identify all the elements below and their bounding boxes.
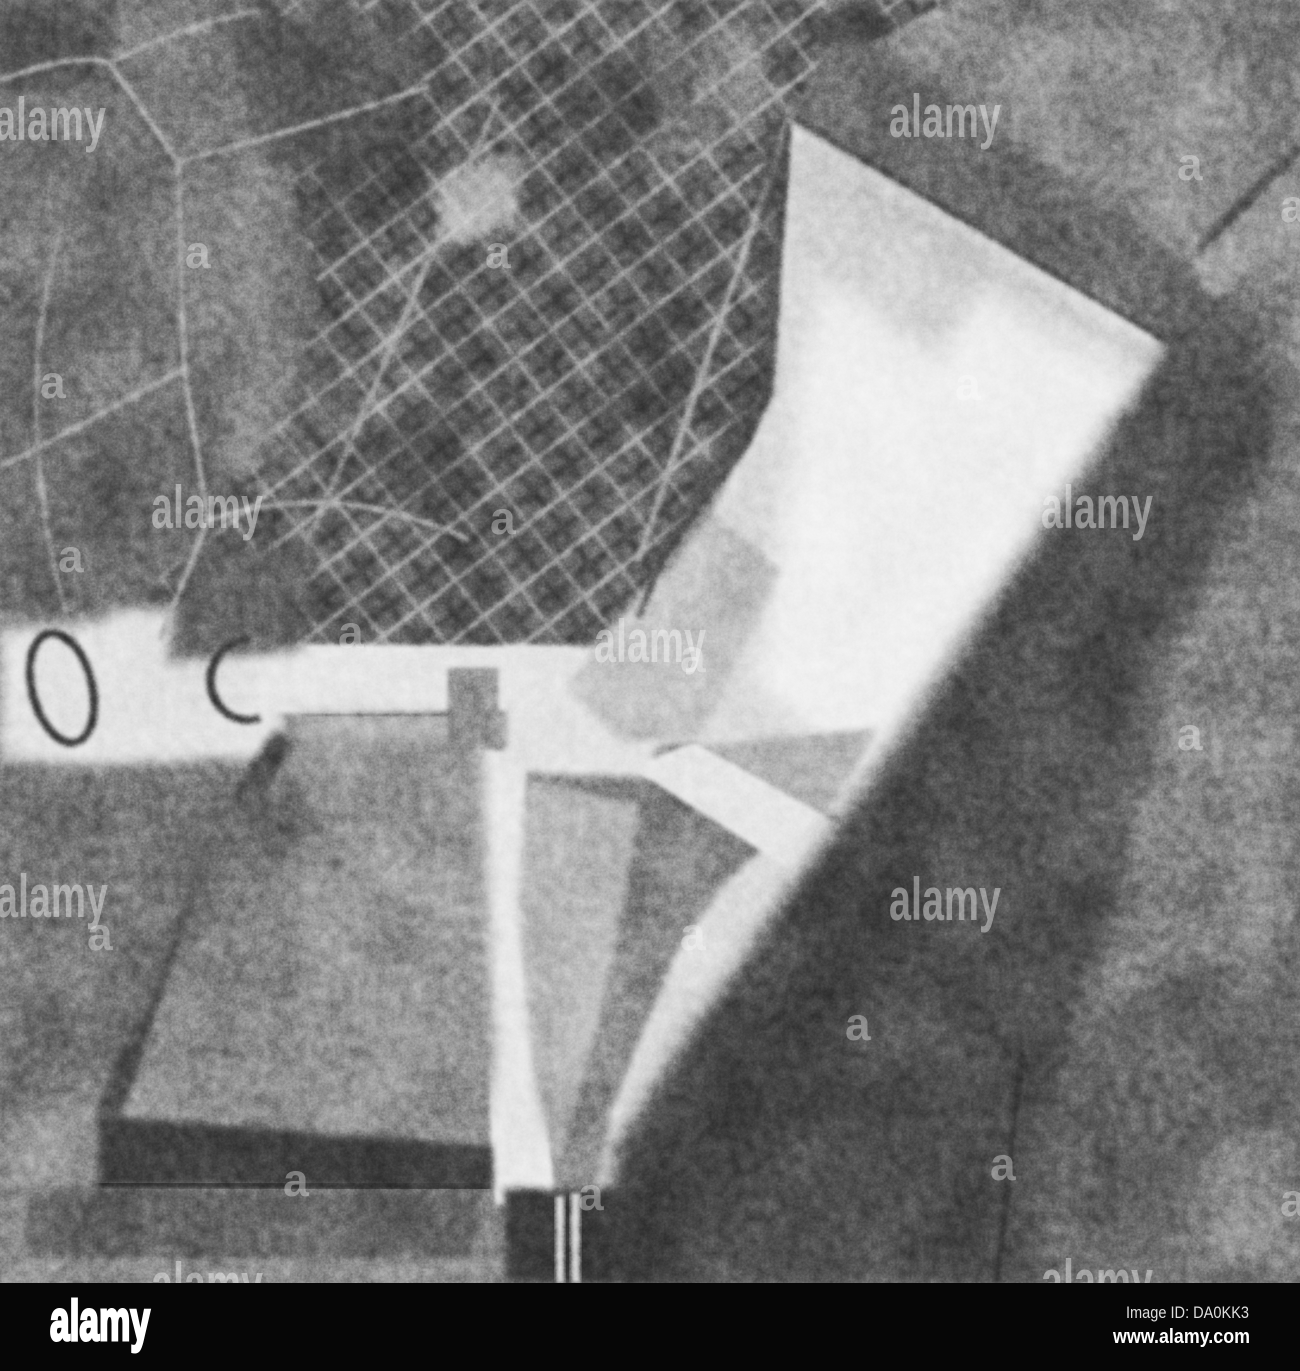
svg-text:a: a <box>1177 708 1203 760</box>
svg-text:alamy: alamy <box>50 1289 150 1353</box>
svg-text:alamy: alamy <box>0 86 106 153</box>
svg-text:a: a <box>185 226 211 278</box>
svg-text:a: a <box>680 908 706 960</box>
svg-text:a: a <box>283 1154 309 1206</box>
svg-text:a: a <box>87 908 113 960</box>
svg-text:a: a <box>485 226 511 278</box>
svg-text:a: a <box>40 356 66 408</box>
svg-text:a: a <box>1280 180 1300 232</box>
svg-text:Image ID: DA0KK3: Image ID: DA0KK3 <box>1126 1303 1249 1322</box>
svg-text:a: a <box>990 1138 1016 1190</box>
svg-text:a: a <box>1280 1174 1300 1226</box>
svg-text:alamy: alamy <box>151 474 263 541</box>
svg-text:a: a <box>680 630 706 682</box>
svg-text:a: a <box>845 998 871 1050</box>
svg-text:alamy: alamy <box>889 866 1001 933</box>
svg-text:alamy: alamy <box>1041 474 1153 541</box>
svg-text:a: a <box>490 492 516 544</box>
svg-text:a: a <box>955 358 981 410</box>
svg-text:a: a <box>338 606 364 658</box>
svg-text:www.alamy.com: www.alamy.com <box>1112 1326 1250 1348</box>
svg-text:a: a <box>58 530 84 582</box>
svg-text:alamy: alamy <box>889 83 1001 150</box>
svg-text:a: a <box>1177 138 1203 190</box>
svg-text:a: a <box>578 1168 604 1220</box>
